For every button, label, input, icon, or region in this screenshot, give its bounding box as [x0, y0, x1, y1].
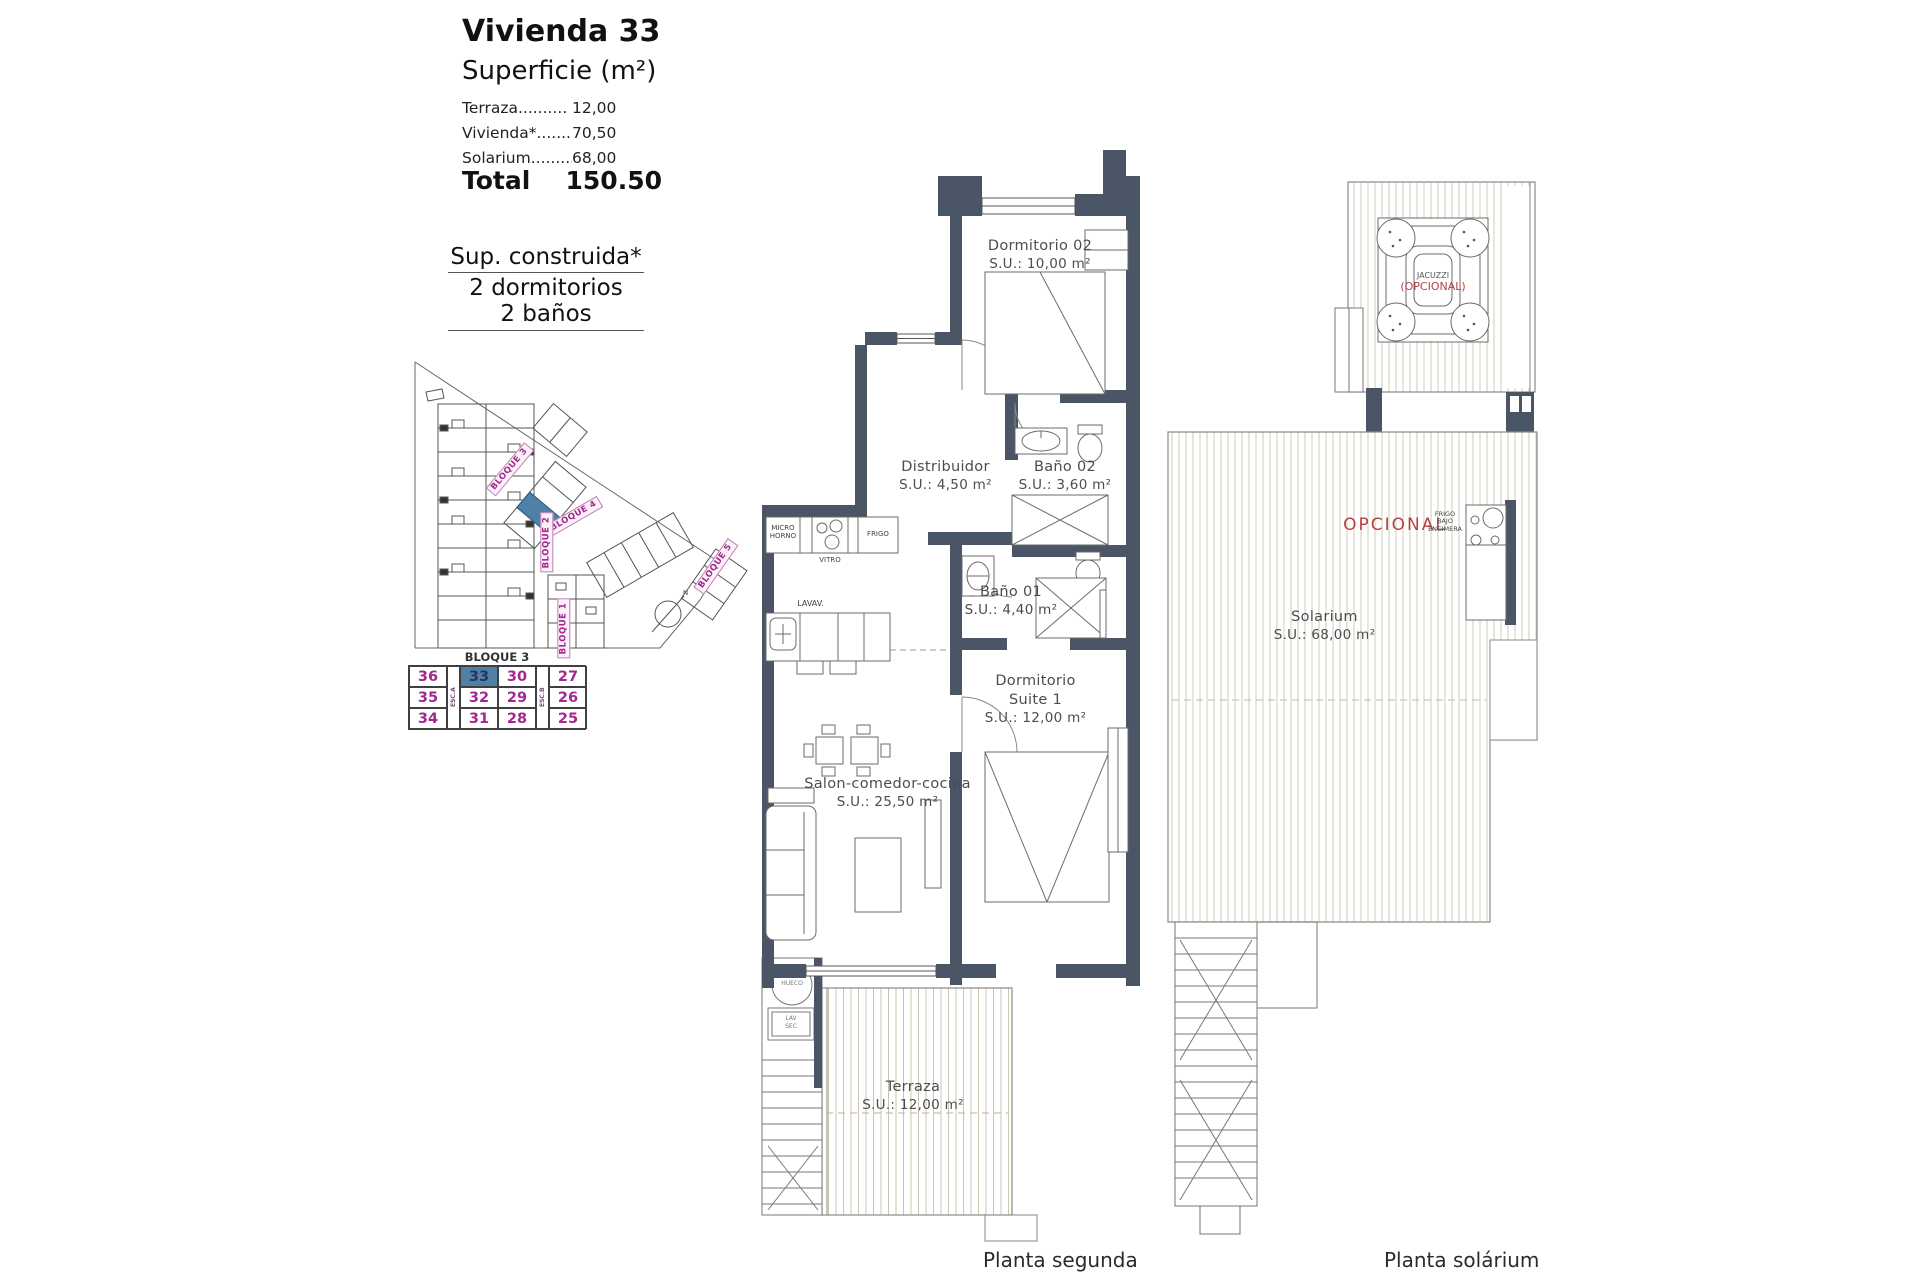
- stair-a-label: ESC.A: [447, 666, 460, 729]
- bloque2-label: BLOQUE 2: [540, 513, 553, 573]
- island-counter-icon: [766, 613, 950, 674]
- site-plan: N: [408, 340, 738, 670]
- surface-subtitle: Superficie (m²): [462, 56, 656, 86]
- unit-34: 34: [409, 708, 447, 729]
- dining-table-icon: [804, 725, 890, 776]
- sink-icon-bano02: [1015, 428, 1067, 454]
- room-label-bano02: Baño 02 S.U.: 3,60 m²: [995, 458, 1135, 494]
- kitchenette-counter-icon: [1466, 500, 1516, 625]
- unit-35: 35: [409, 687, 447, 708]
- room-label-dormitorio02: Dormitorio 02 S.U.: 10,00 m²: [955, 237, 1125, 273]
- coffee-table-icon: [855, 838, 901, 912]
- sec-label: SEC: [776, 1024, 806, 1031]
- surface-row-vivienda: Vivienda*........ 70,50: [462, 121, 652, 146]
- bed-icon-suite: [985, 728, 1128, 902]
- room-label-terraza: Terraza S.U.: 12,00 m²: [838, 1078, 988, 1114]
- bloque4-strip: [587, 513, 694, 598]
- unit-27: 27: [549, 666, 587, 687]
- surface-table: Terraza.......... 12,00 Vivienda*.......…: [462, 96, 652, 171]
- townhouse-rows: [438, 404, 534, 648]
- unit-29: 29: [498, 687, 536, 708]
- svg-text:N: N: [683, 589, 688, 597]
- surface-total: Total 150.50: [462, 166, 662, 195]
- vitro-label: VITRO: [810, 556, 850, 564]
- toilet-icon-bano02: [1078, 425, 1102, 462]
- tv-unit-icon: [925, 800, 941, 888]
- unit-28: 28: [498, 708, 536, 729]
- shaft-label: HUECO: [777, 981, 807, 988]
- room-label-solarium: Solarium S.U.: 68,00 m²: [1252, 608, 1397, 644]
- caption-planta-segunda: Planta segunda: [983, 1248, 1138, 1272]
- unit-26: 26: [549, 687, 587, 708]
- unit-36: 36: [409, 666, 447, 687]
- lav-label: LAV: [776, 1016, 806, 1023]
- floorplan-sheet: Vivienda 33 Superficie (m²) Terraza.....…: [0, 0, 1920, 1280]
- built-surface-note: Sup. construida* 2 dormitorios 2 baños: [448, 244, 644, 331]
- stairs-icon: [762, 958, 822, 1215]
- room-label-suite: Dormitorio Suite 1 S.U.: 12,00 m²: [968, 672, 1103, 727]
- unit-31: 31: [460, 708, 498, 729]
- walls: [1366, 388, 1534, 438]
- surface-row-terraza: Terraza.......... 12,00: [462, 96, 652, 121]
- built-title: Sup. construida*: [448, 244, 644, 273]
- micro-horno-label: MICRO HORNO: [766, 524, 800, 540]
- jacuzzi-label: JACUZZI: [1403, 271, 1463, 280]
- unit-33-highlighted: 33: [460, 666, 498, 687]
- bathrooms-count: 2 baños: [448, 301, 644, 331]
- lavav-label: LAVAV.: [788, 599, 833, 608]
- unit-30: 30: [498, 666, 536, 687]
- compass-icon: N: [652, 589, 688, 632]
- jacuzzi-optional-label: (OPCIONAL): [1393, 281, 1473, 294]
- caption-planta-solarium: Planta solárium: [1384, 1248, 1539, 1272]
- page-title: Vivienda 33: [462, 14, 660, 49]
- unit-table-title: BLOQUE 3: [408, 650, 586, 664]
- kitchenette-label: FRIGO BAJO ENCIMERA: [1426, 511, 1464, 533]
- frigo-label: FRIGO: [858, 530, 898, 538]
- stairs-icon: [1175, 922, 1317, 1234]
- room-label-bano01: Baño 01 S.U.: 4,40 m²: [941, 583, 1081, 619]
- unit-25: 25: [549, 708, 587, 729]
- terraza-deck: [822, 988, 1037, 1241]
- bloque3-unit-table: BLOQUE 3 36 ESC.A 33 30 ESC.B 27 35 32 2…: [408, 650, 588, 730]
- room-label-salon: Salon-comedor-cocina S.U.: 25,50 m²: [795, 775, 980, 811]
- bedrooms-count: 2 dormitorios: [448, 273, 644, 301]
- planta-solarium-plan: [1160, 140, 1555, 1250]
- shower-icon-bano02: [1012, 495, 1108, 545]
- unit-table-grid: 36 ESC.A 33 30 ESC.B 27 35 32 29 26 34 3…: [408, 665, 586, 730]
- hob-icon: [817, 523, 827, 533]
- stair-b-label: ESC.B: [536, 666, 549, 729]
- unit-32: 32: [460, 687, 498, 708]
